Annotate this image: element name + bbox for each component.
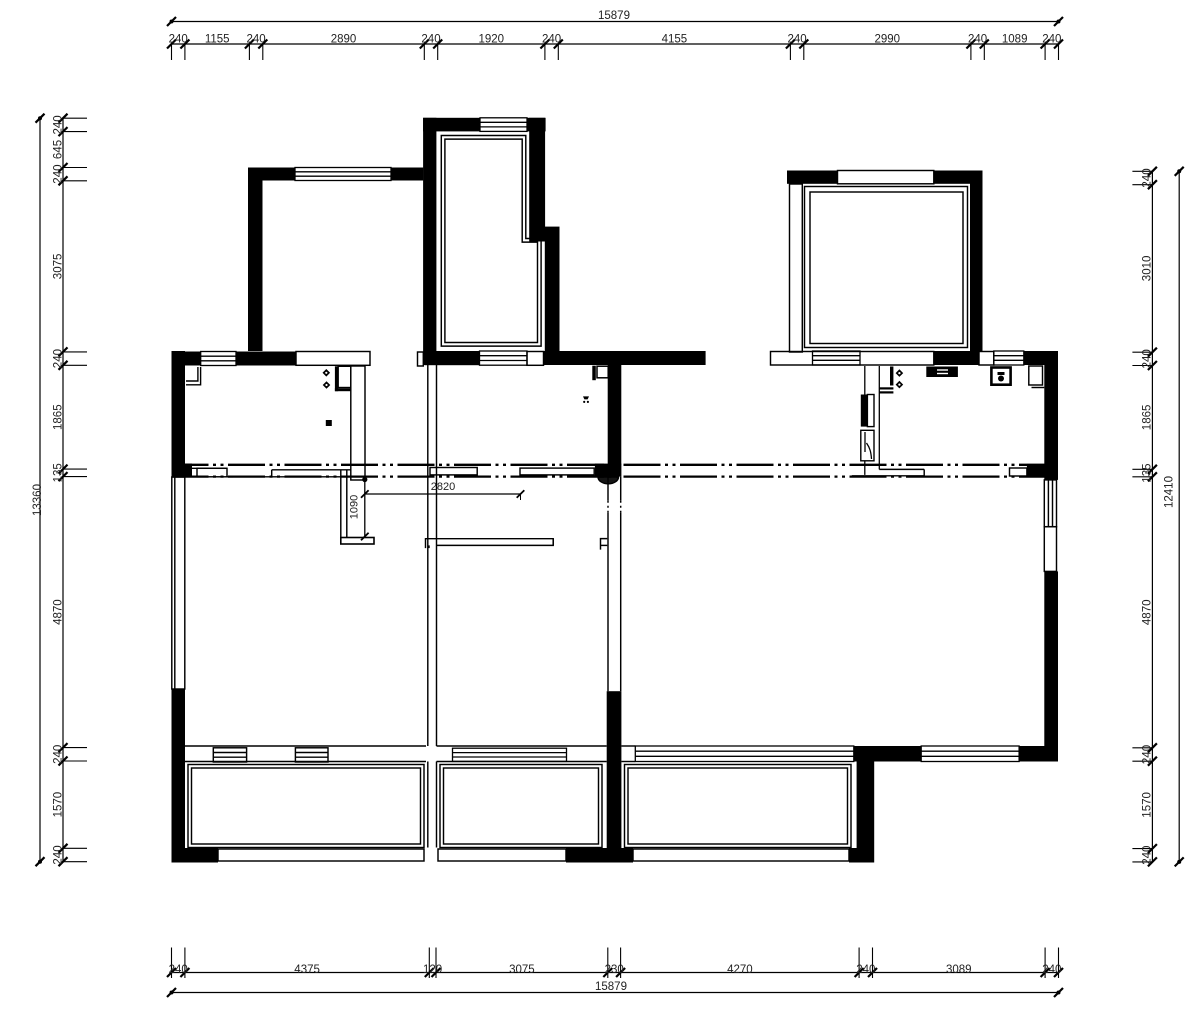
svg-text:240: 240 xyxy=(53,845,65,864)
svg-text:240: 240 xyxy=(53,745,65,764)
svg-text:240: 240 xyxy=(1142,846,1154,865)
svg-text:1155: 1155 xyxy=(205,34,230,46)
svg-text:230: 230 xyxy=(605,964,624,976)
svg-text:240: 240 xyxy=(247,34,266,46)
svg-text:240: 240 xyxy=(1042,34,1061,46)
svg-text:240: 240 xyxy=(1142,349,1154,368)
svg-text:1865: 1865 xyxy=(53,404,65,430)
svg-text:1570: 1570 xyxy=(53,792,65,818)
svg-text:240: 240 xyxy=(169,34,188,46)
svg-text:3089: 3089 xyxy=(946,964,972,976)
svg-text:240: 240 xyxy=(788,34,807,46)
svg-text:4155: 4155 xyxy=(662,34,688,46)
svg-text:3075: 3075 xyxy=(509,964,535,976)
svg-text:4870: 4870 xyxy=(53,599,65,625)
svg-text:3075: 3075 xyxy=(53,254,65,280)
svg-text:240: 240 xyxy=(169,964,188,976)
svg-text:240: 240 xyxy=(53,115,65,134)
svg-text:3010: 3010 xyxy=(1142,256,1154,282)
svg-text:645: 645 xyxy=(53,140,65,159)
svg-text:13360: 13360 xyxy=(32,484,44,516)
svg-text:240: 240 xyxy=(1042,964,1061,976)
svg-text:2820: 2820 xyxy=(431,481,455,493)
svg-text:12410: 12410 xyxy=(1164,476,1176,508)
svg-text:15879: 15879 xyxy=(595,981,627,993)
svg-text:240: 240 xyxy=(542,34,561,46)
svg-text:15879: 15879 xyxy=(598,10,630,22)
svg-text:120: 120 xyxy=(423,964,442,976)
svg-text:4870: 4870 xyxy=(1142,600,1154,626)
svg-text:240: 240 xyxy=(968,34,987,46)
svg-text:4375: 4375 xyxy=(294,964,320,976)
svg-text:1090: 1090 xyxy=(349,495,361,519)
svg-text:1920: 1920 xyxy=(479,34,505,46)
svg-text:240: 240 xyxy=(421,34,440,46)
svg-text:240: 240 xyxy=(1142,168,1154,187)
svg-text:135: 135 xyxy=(1142,464,1154,483)
svg-text:135: 135 xyxy=(53,463,65,482)
svg-text:240: 240 xyxy=(856,964,875,976)
svg-text:1570: 1570 xyxy=(1142,792,1154,818)
svg-text:240: 240 xyxy=(53,165,65,184)
svg-text:240: 240 xyxy=(53,349,65,368)
svg-text:240: 240 xyxy=(1142,745,1154,764)
svg-text:2890: 2890 xyxy=(331,34,357,46)
svg-text:2990: 2990 xyxy=(875,34,901,46)
svg-text:1865: 1865 xyxy=(1142,405,1154,431)
svg-text:4270: 4270 xyxy=(727,964,753,976)
svg-text:1089: 1089 xyxy=(1002,34,1028,46)
